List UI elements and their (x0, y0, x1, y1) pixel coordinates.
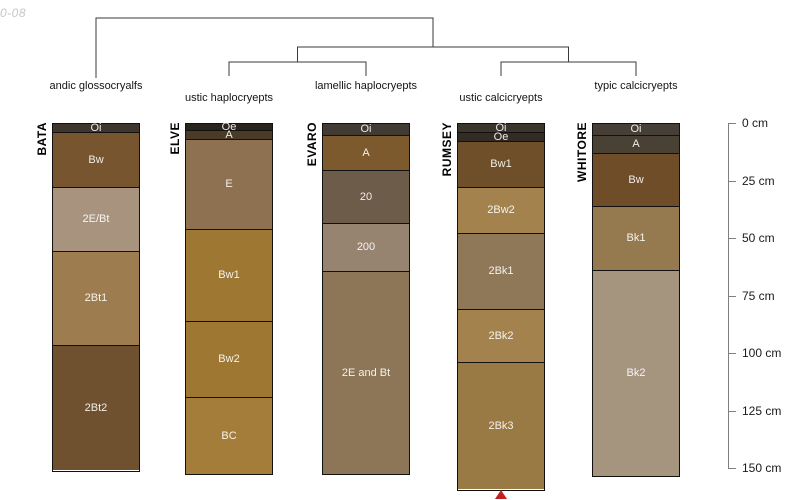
soil-horizon: Oi (593, 124, 679, 136)
horizon-label: Bw (628, 175, 643, 186)
soil-horizon: Bw (53, 133, 139, 188)
soil-profile-column: OeAEBw1Bw2BC (185, 123, 273, 475)
soil-horizon: Bw2 (186, 322, 272, 398)
pedon-id-label: RUMSEY (441, 122, 454, 176)
horizon-label: 200 (357, 242, 375, 253)
soil-horizon: 2Bk2 (458, 310, 544, 363)
depth-axis-tick-label: 25 cm (742, 175, 775, 187)
depth-axis-tick (728, 411, 736, 412)
soil-horizon: 200 (323, 224, 409, 272)
soil-horizon: Oi (53, 124, 139, 133)
horizon-label: 20 (360, 192, 372, 203)
horizon-label: 2Bt1 (85, 293, 108, 304)
horizon-label: Bw1 (218, 270, 239, 281)
soil-horizon: Bw1 (186, 230, 272, 322)
horizon-label: 2Bk3 (488, 421, 513, 432)
soil-horizon: 2Bt1 (53, 252, 139, 346)
depth-axis-tick-label: 75 cm (742, 290, 775, 302)
dendrogram-link (229, 62, 366, 76)
horizon-label: 2Bw2 (487, 205, 515, 216)
depth-axis-tick-label: 0 cm (742, 117, 768, 129)
soil-horizon: A (186, 131, 272, 140)
pedon-id-label: ELVE (169, 122, 182, 154)
horizon-label: Oi (631, 124, 642, 135)
horizon-label: 2Bk1 (488, 266, 513, 277)
soil-horizon: Bw1 (458, 142, 544, 188)
horizon-label: A (362, 148, 369, 159)
soil-horizon: Bk2 (593, 271, 679, 476)
horizon-label: A (632, 139, 639, 150)
depth-axis-tick (728, 468, 736, 469)
depth-axis-tick (728, 181, 736, 182)
soil-horizon: Oe (458, 133, 544, 142)
horizon-label: 2Bk2 (488, 331, 513, 342)
soil-horizon: Bw (593, 154, 679, 207)
taxon-label: ustic haplocryepts (185, 92, 273, 104)
profile-continues-arrow-icon (495, 490, 507, 499)
horizon-label: Bk1 (627, 233, 646, 244)
soil-profile-column: OiOeBw12Bw22Bk12Bk22Bk3 (457, 123, 545, 491)
horizon-label: Bw1 (490, 159, 511, 170)
depth-axis-tick-label: 125 cm (742, 405, 781, 417)
soil-horizon: E (186, 140, 272, 230)
soil-horizon: A (323, 136, 409, 171)
dendrogram-link (501, 62, 636, 76)
soil-horizon: 2E and Bt (323, 272, 409, 474)
soil-taxonomy-dendrogram-figure: 0-08 andic glossocryalfsBATAOiBw2E/Bt2Bt… (0, 0, 800, 500)
dendrogram-link (96, 18, 433, 78)
soil-horizon: 2Bk3 (458, 363, 544, 489)
horizon-label: Bk2 (627, 368, 646, 379)
depth-axis-tick-label: 150 cm (742, 462, 781, 474)
horizon-label: Oe (494, 132, 509, 143)
soil-horizon: 20 (323, 171, 409, 224)
horizon-label: Bw2 (218, 354, 239, 365)
depth-axis-tick (728, 123, 736, 124)
soil-profile-column: OiA202002E and Bt (322, 123, 410, 475)
depth-axis-tick (728, 353, 736, 354)
horizon-label: 2Bt2 (85, 403, 108, 414)
soil-horizon: BC (186, 398, 272, 474)
soil-profile-column: OiABwBk1Bk2 (592, 123, 680, 477)
soil-horizon: Oi (323, 124, 409, 136)
taxon-label: typic calcicryepts (594, 80, 677, 92)
horizon-label: A (225, 130, 232, 141)
horizon-label: BC (221, 431, 236, 442)
depth-axis-tick-label: 100 cm (742, 347, 781, 359)
soil-profile-column: OiBw2E/Bt2Bt12Bt2 (52, 123, 140, 472)
pedon-id-label: EVARO (306, 122, 319, 166)
soil-horizon: 2Bt2 (53, 346, 139, 470)
pedon-id-label: WHITORE (576, 122, 589, 182)
soil-horizon: 2Bk1 (458, 234, 544, 310)
soil-horizon: 2E/Bt (53, 188, 139, 252)
soil-horizon: 2Bw2 (458, 188, 544, 234)
horizon-label: Oi (361, 124, 372, 135)
depth-axis-tick (728, 238, 736, 239)
pedon-id-label: BATA (36, 122, 49, 156)
dendrogram-link (298, 47, 569, 62)
horizon-label: Bw (88, 155, 103, 166)
soil-horizon: Bk1 (593, 207, 679, 271)
horizon-label: 2E/Bt (83, 214, 110, 225)
taxon-label: andic glossocryalfs (50, 80, 143, 92)
horizon-label: Oi (91, 123, 102, 134)
taxon-label: ustic calcicryepts (459, 92, 542, 104)
depth-axis-tick (728, 296, 736, 297)
dendrogram (0, 0, 800, 125)
taxon-label: lamellic haplocryepts (315, 80, 417, 92)
soil-horizon: A (593, 136, 679, 154)
horizon-label: E (225, 179, 232, 190)
horizon-label: 2E and Bt (342, 368, 390, 379)
depth-axis-tick-label: 50 cm (742, 232, 775, 244)
